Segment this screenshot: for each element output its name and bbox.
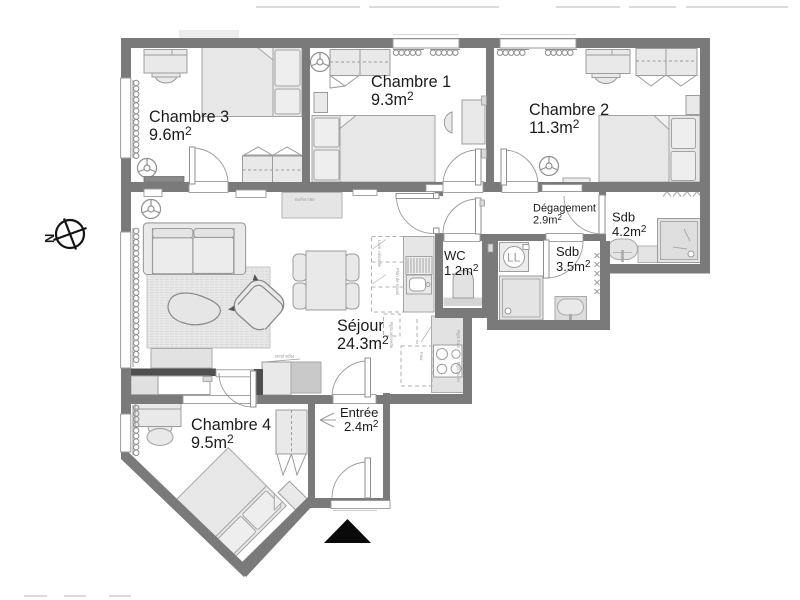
svg-text:Entrée: Entrée xyxy=(340,405,378,420)
svg-text:Chambre 2: Chambre 2 xyxy=(529,101,609,119)
svg-text:Plan de travail: Plan de travail xyxy=(395,268,400,295)
svg-text:11.3m2: 11.3m2 xyxy=(529,117,580,137)
svg-text:N: N xyxy=(42,234,57,243)
svg-text:Rgts plats: Rgts plats xyxy=(275,354,294,359)
svg-text:Séjour: Séjour xyxy=(337,317,384,335)
svg-text:Rgts haut: Rgts haut xyxy=(456,330,461,349)
svg-text:Dégagement: Dégagement xyxy=(533,203,596,215)
svg-text:Sdb: Sdb xyxy=(556,244,579,259)
svg-text:Sdb: Sdb xyxy=(612,210,635,225)
svg-text:Rgts plans: Rgts plans xyxy=(456,362,461,382)
svg-text:WC: WC xyxy=(444,248,466,263)
svg-text:Four: Four xyxy=(419,352,424,361)
svg-text:LL: LL xyxy=(507,251,521,265)
svg-text:Lave vaisselle: Lave vaisselle xyxy=(377,240,382,268)
svg-text:Buffet h80: Buffet h80 xyxy=(295,197,315,202)
svg-text:24.3m2: 24.3m2 xyxy=(337,333,389,353)
svg-text:Rgts serviette: Rgts serviette xyxy=(389,322,394,349)
